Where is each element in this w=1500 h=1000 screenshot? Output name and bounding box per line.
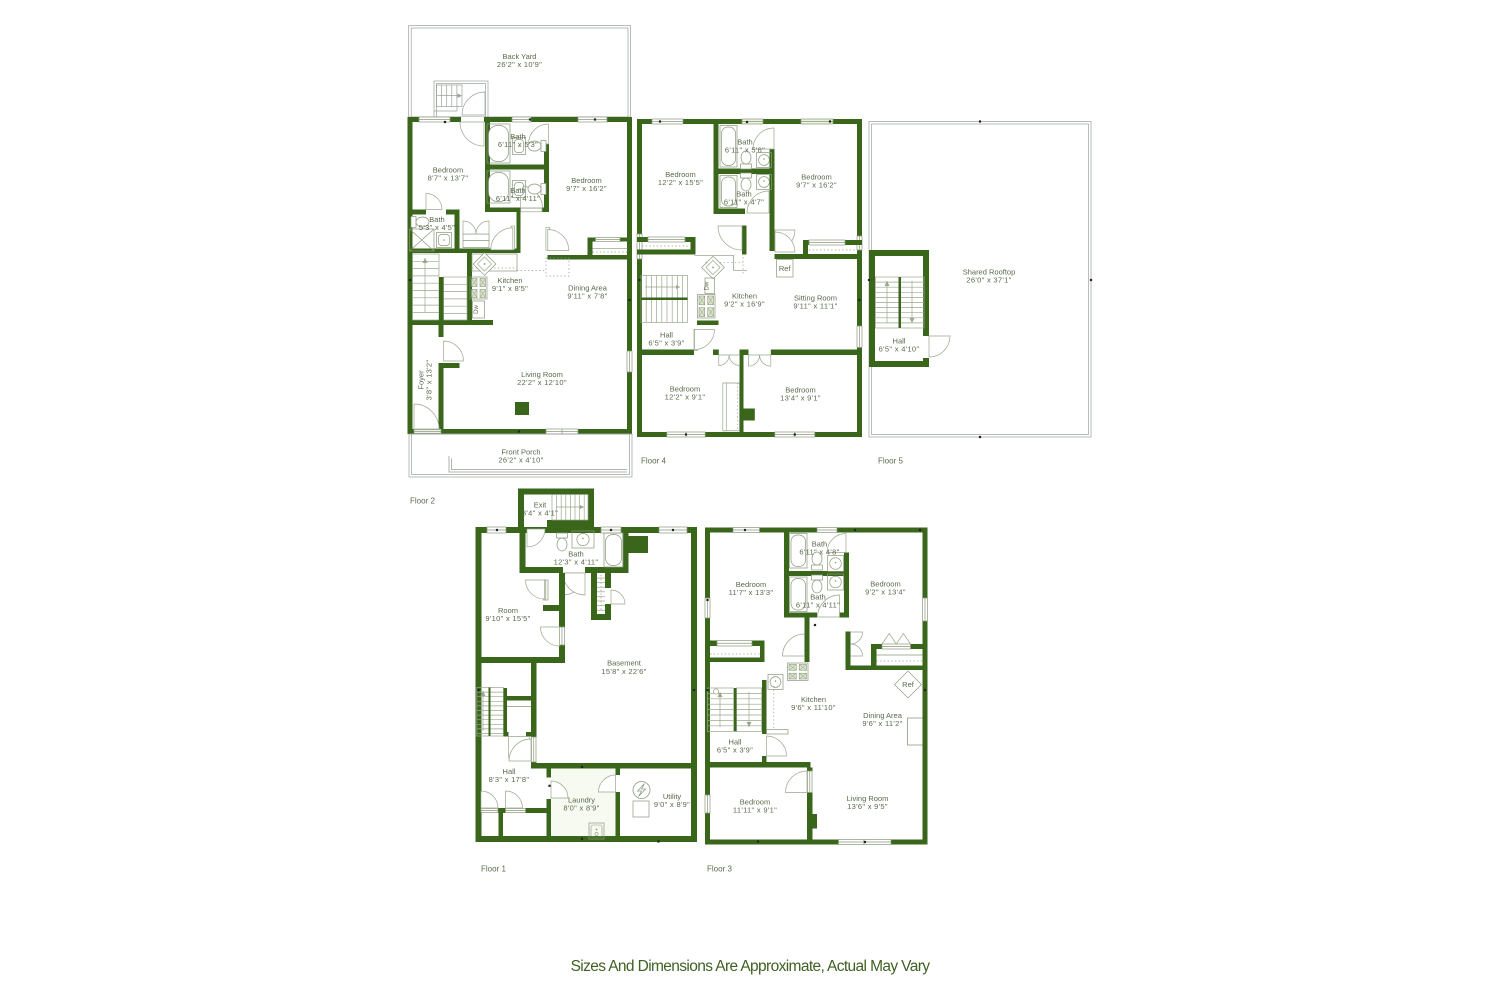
svg-text:9'11" x 7'8": 9'11" x 7'8" xyxy=(567,292,607,301)
svg-text:9'7" x 16'2": 9'7" x 16'2" xyxy=(796,181,837,190)
svg-text:9'2" x 16'9": 9'2" x 16'9" xyxy=(724,300,765,309)
svg-text:13'4" x 9'1": 13'4" x 9'1" xyxy=(780,394,821,403)
svg-text:9'11" x 11'1": 9'11" x 11'1" xyxy=(793,302,837,311)
svg-text:8'7" x 13'7": 8'7" x 13'7" xyxy=(428,174,469,183)
svg-text:Dw: Dw xyxy=(705,281,711,290)
svg-text:9'7" x 16'2": 9'7" x 16'2" xyxy=(566,184,607,193)
svg-text:Ref: Ref xyxy=(902,680,915,689)
svg-text:26'2" x 4'10": 26'2" x 4'10" xyxy=(498,456,543,465)
svg-text:6'11" x 5'3": 6'11" x 5'3" xyxy=(498,140,538,149)
svg-text:3'4" x 4'1": 3'4" x 4'1" xyxy=(522,509,558,518)
svg-text:Ref: Ref xyxy=(779,264,792,273)
svg-text:6'11" x 4'11": 6'11" x 4'11" xyxy=(496,194,540,203)
svg-text:6'5" x 3'9": 6'5" x 3'9" xyxy=(717,746,753,755)
svg-text:12'2" x 9'1": 12'2" x 9'1" xyxy=(665,393,706,402)
svg-text:8'3" x 17'8": 8'3" x 17'8" xyxy=(489,775,530,784)
svg-text:6'11" x 4'7": 6'11" x 4'7" xyxy=(724,198,764,207)
svg-text:6'11" x 4'11": 6'11" x 4'11" xyxy=(796,601,840,610)
svg-text:11'11" x 9'1": 11'11" x 9'1" xyxy=(733,806,777,815)
svg-text:12'2" x 15'5": 12'2" x 15'5" xyxy=(658,178,703,187)
svg-text:9'1" x 8'5": 9'1" x 8'5" xyxy=(492,284,528,293)
svg-text:6'11" x 4'8": 6'11" x 4'8" xyxy=(799,548,839,557)
svg-text:6'11" x 5'6": 6'11" x 5'6" xyxy=(725,146,765,155)
svg-text:Floor 2: Floor 2 xyxy=(410,497,435,506)
svg-text:5'3" x 4'5": 5'3" x 4'5" xyxy=(419,223,455,232)
svg-text:9'2" x 13'4": 9'2" x 13'4" xyxy=(865,588,906,597)
svg-text:12'3" x 4'11": 12'3" x 4'11" xyxy=(554,558,599,567)
svg-text:Floor 5: Floor 5 xyxy=(878,457,903,466)
svg-text:Dw: Dw xyxy=(474,305,480,314)
svg-text:9'0" x 8'9": 9'0" x 8'9" xyxy=(654,800,690,809)
svg-text:Floor 1: Floor 1 xyxy=(481,865,506,874)
svg-text:3'8" x 13'2": 3'8" x 13'2" xyxy=(425,360,434,401)
svg-text:11'7" x 13'3": 11'7" x 13'3" xyxy=(729,588,774,597)
svg-text:Sizes And Dimensions Are Appro: Sizes And Dimensions Are Approximate, Ac… xyxy=(571,958,931,975)
svg-text:13'6" x 9'5": 13'6" x 9'5" xyxy=(847,802,888,811)
svg-text:9'6" x 11'10": 9'6" x 11'10" xyxy=(791,703,836,712)
svg-text:6'5" x 4'10": 6'5" x 4'10" xyxy=(879,345,920,354)
svg-text:6'5" x 3'9": 6'5" x 3'9" xyxy=(648,339,684,348)
svg-text:26'0" x 37'1": 26'0" x 37'1" xyxy=(966,276,1011,285)
svg-text:8'0" x 8'9": 8'0" x 8'9" xyxy=(563,804,599,813)
svg-text:Floor 3: Floor 3 xyxy=(707,865,732,874)
svg-text:9'6" x 11'2": 9'6" x 11'2" xyxy=(862,719,902,728)
svg-text:Floor 4: Floor 4 xyxy=(641,457,666,466)
svg-text:26'2" x 10'9": 26'2" x 10'9" xyxy=(497,60,542,69)
svg-text:22'2" x 12'10": 22'2" x 12'10" xyxy=(517,378,567,387)
svg-text:15'8" x 22'6": 15'8" x 22'6" xyxy=(601,667,646,676)
svg-text:9'10" x 15'5": 9'10" x 15'5" xyxy=(485,614,530,623)
